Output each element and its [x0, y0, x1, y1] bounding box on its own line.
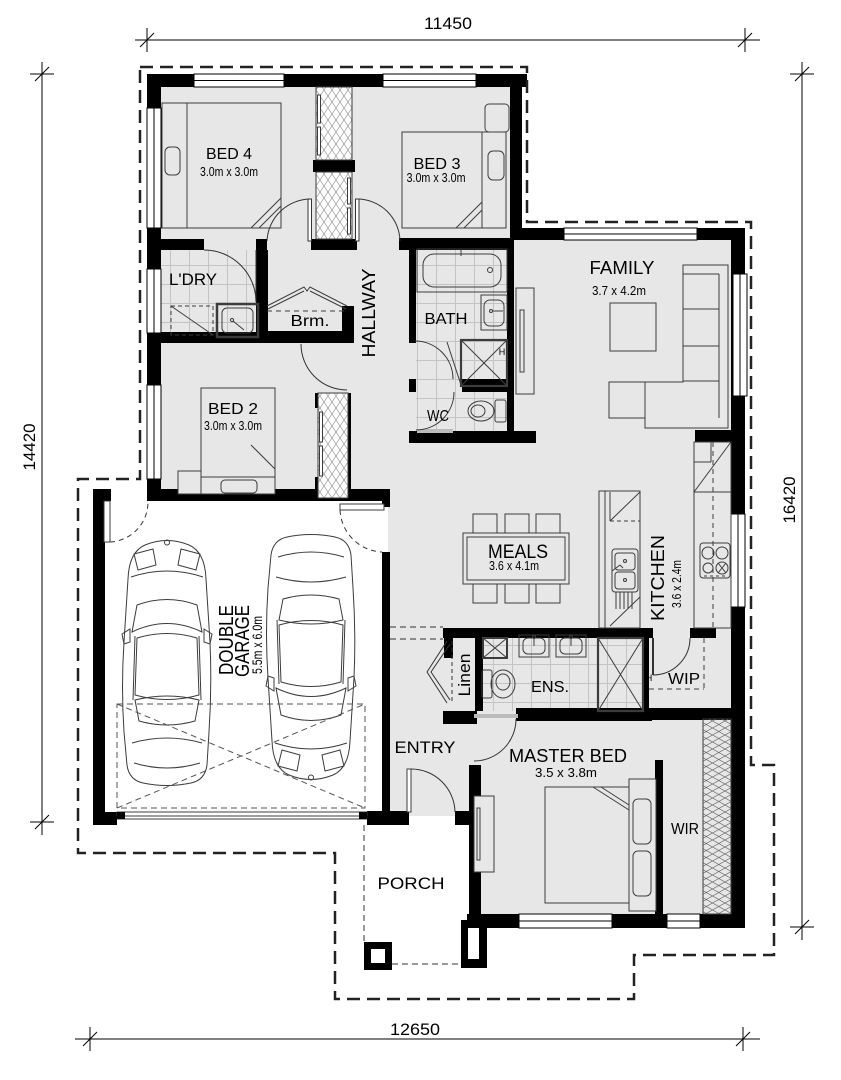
svg-text:Linen: Linen	[455, 654, 474, 697]
svg-text:3.7 x 4.2m: 3.7 x 4.2m	[592, 283, 646, 298]
svg-text:H: H	[646, 673, 653, 683]
svg-text:MASTER BED: MASTER BED	[509, 746, 627, 766]
svg-text:PORCH: PORCH	[378, 874, 445, 893]
svg-text:WIP: WIP	[668, 671, 700, 688]
svg-text:H: H	[499, 347, 506, 357]
svg-text:KITCHEN: KITCHEN	[648, 535, 668, 621]
svg-text:BATH: BATH	[425, 311, 468, 328]
svg-text:L'DRY: L'DRY	[169, 271, 217, 289]
svg-text:BED 4: BED 4	[206, 146, 252, 163]
svg-text:3.0m x 3.0m: 3.0m x 3.0m	[407, 170, 466, 185]
svg-text:Brm.: Brm.	[291, 313, 330, 330]
svg-text:3.5 x 3.8m: 3.5 x 3.8m	[535, 765, 597, 780]
svg-text:3.6 x 4.1m: 3.6 x 4.1m	[489, 558, 539, 573]
svg-text:WC: WC	[427, 408, 449, 425]
svg-text:BED 2: BED 2	[208, 401, 258, 418]
svg-text:3.6 x 2.4m: 3.6 x 2.4m	[669, 560, 684, 608]
svg-text:3.0m x 3.0m: 3.0m x 3.0m	[200, 164, 258, 179]
svg-text:ENTRY: ENTRY	[395, 738, 456, 757]
svg-text:ENS.: ENS.	[531, 679, 569, 696]
svg-text:5.5m x 6.0m: 5.5m x 6.0m	[250, 616, 265, 674]
svg-text:16420: 16420	[781, 477, 799, 524]
svg-text:HALLWAY: HALLWAY	[359, 269, 379, 358]
svg-text:WIR: WIR	[671, 821, 699, 838]
svg-text:12650: 12650	[390, 1021, 440, 1039]
svg-text:FAMILY: FAMILY	[590, 258, 655, 278]
svg-text:11450: 11450	[424, 15, 472, 33]
svg-text:3.0m x 3.0m: 3.0m x 3.0m	[204, 418, 262, 433]
svg-text:14420: 14420	[21, 424, 39, 471]
